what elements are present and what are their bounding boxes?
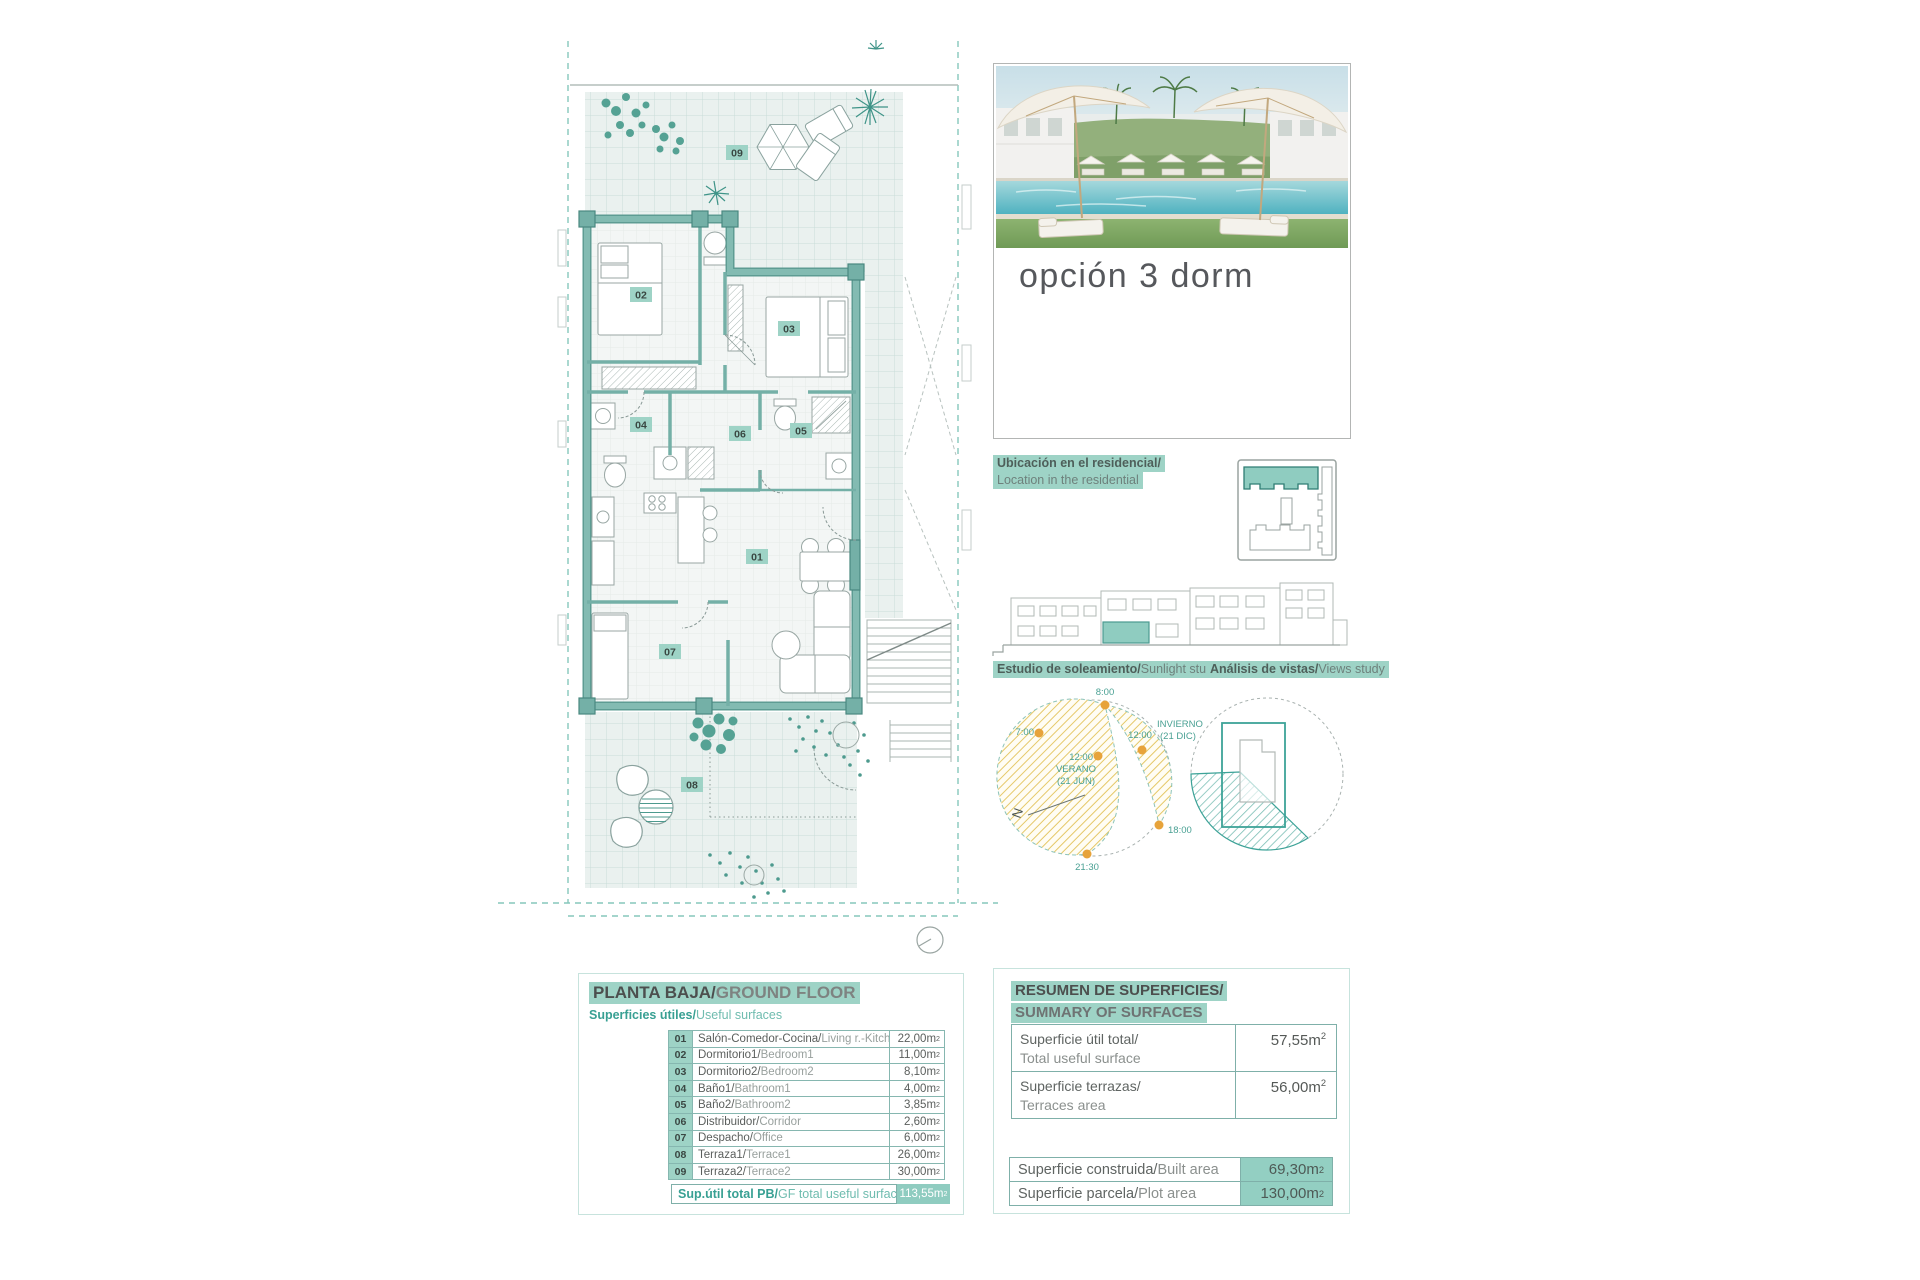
- table-row: 02Dormitorio1/Bedroom111,00m2: [669, 1047, 944, 1064]
- row-value: 11,00m2: [889, 1048, 944, 1064]
- room-label-06: 06: [734, 429, 746, 441]
- total-label: Sup.útil total PB/GF total useful surfac…: [671, 1184, 897, 1204]
- row-num: 09: [669, 1164, 693, 1180]
- row-value: 26,00m2: [889, 1147, 944, 1163]
- row-name: Terraza2/Terrace2: [693, 1164, 889, 1180]
- table-row: Superficie construida/Built area 69,30m2: [1010, 1158, 1332, 1181]
- row-name: Despacho/Office: [693, 1131, 889, 1147]
- table-row: Superficie útil total/Total useful surfa…: [1012, 1025, 1336, 1071]
- views-study-label: Análisis de vistas/Views study: [1206, 661, 1389, 678]
- diagonal-guides: [905, 277, 956, 610]
- row-name: Dormitorio1/Bedroom1: [693, 1048, 889, 1064]
- row-value: 69,30m2: [1240, 1158, 1332, 1181]
- row-name: Salón-Comedor-Cocina/Living r.-Kitchen: [693, 1031, 889, 1047]
- views-building-footprint: [1240, 740, 1275, 802]
- row-name: Baño2/Bathroom2: [693, 1097, 889, 1113]
- summary-of-surfaces-panel: RESUMEN DE SUPERFICIES/ SUMMARY OF SURFA…: [993, 968, 1350, 1214]
- room-label-01: 01: [751, 552, 763, 564]
- ground-floor-title-en: GROUND FLOOR: [716, 983, 856, 1002]
- useful-surfaces-subtitle-en: Useful surfaces: [696, 1008, 782, 1022]
- sun-time-1200-winter: 12:00: [1128, 730, 1152, 741]
- table-row: 01Salón-Comedor-Cocina/Living r.-Kitchen…: [669, 1031, 944, 1047]
- row-value: 22,00m2: [889, 1031, 944, 1047]
- row-label: Superficie parcela/Plot area: [1010, 1182, 1240, 1205]
- row-name: Distribuidor/Corridor: [693, 1114, 889, 1130]
- room-label-02: 02: [635, 290, 647, 302]
- sun-summer-date: (21 JUN): [1057, 776, 1095, 787]
- room-label-05: 05: [795, 426, 807, 438]
- room-surfaces-table: 01Salón-Comedor-Cocina/Living r.-Kitchen…: [668, 1030, 945, 1180]
- useful-surfaces-subtitle: Superficies útiles/Useful surfaces: [589, 1008, 782, 1022]
- row-name: Baño1/Bathroom1: [693, 1081, 889, 1097]
- ground-floor-title-es: PLANTA BAJA/: [593, 983, 716, 1002]
- row-value: 6,00m2: [889, 1131, 944, 1147]
- row-num: 01: [669, 1031, 693, 1047]
- row-label: Superficie construida/Built area: [1010, 1158, 1240, 1181]
- row-value: 57,55m2: [1235, 1025, 1336, 1071]
- sun-summer-label: VERANO: [1056, 764, 1096, 775]
- row-num: 08: [669, 1147, 693, 1163]
- ground-floor-title: PLANTA BAJA/GROUND FLOOR: [589, 983, 860, 1003]
- row-name: Terraza1/Terrace1: [693, 1147, 889, 1163]
- section-marker: [917, 927, 943, 953]
- table-row: 07Despacho/Office6,00m2: [669, 1130, 944, 1147]
- table-row: 08Terraza1/Terrace126,00m2: [669, 1146, 944, 1163]
- row-label: Superficie útil total/Total useful surfa…: [1012, 1025, 1235, 1071]
- table-row: 04Baño1/Bathroom14,00m2: [669, 1080, 944, 1097]
- table-row: 06Distribuidor/Corridor2,60m2: [669, 1113, 944, 1130]
- room-label-07: 07: [664, 647, 676, 659]
- stairs: [867, 620, 951, 762]
- room-label-03: 03: [783, 324, 795, 336]
- row-value: 2,60m2: [889, 1114, 944, 1130]
- row-num: 03: [669, 1064, 693, 1080]
- summary-table-main: Superficie útil total/Total useful surfa…: [1011, 1024, 1337, 1119]
- summary-title: RESUMEN DE SUPERFICIES/ SUMMARY OF SURFA…: [1011, 980, 1227, 1024]
- room-label-08: 08: [686, 780, 698, 792]
- highlighted-unit: [1103, 622, 1149, 643]
- row-num: 05: [669, 1097, 693, 1113]
- floor-plan-drawing: 01 02 03 04 05 06 07 08 09: [558, 35, 973, 960]
- sunlight-study-label: Estudio de soleamiento/Sunlight study: [993, 661, 1223, 678]
- row-num: 07: [669, 1131, 693, 1147]
- total-value: 113,55m2: [897, 1184, 950, 1204]
- row-value: 4,00m2: [889, 1081, 944, 1097]
- views-label-en: Views study: [1318, 662, 1384, 676]
- table-row: 09Terraza2/Terrace230,00m2: [669, 1163, 944, 1180]
- row-value: 8,10m2: [889, 1064, 944, 1080]
- summary-table-built-plot: Superficie construida/Built area 69,30m2…: [1009, 1157, 1333, 1206]
- sun-time-2130: 21:30: [1075, 862, 1099, 873]
- room-label-09: 09: [731, 148, 743, 160]
- room-label-04: 04: [635, 420, 647, 432]
- table-row: 05Baño2/Bathroom23,85m2: [669, 1096, 944, 1113]
- summary-title-en: SUMMARY OF SURFACES: [1011, 1003, 1207, 1023]
- option-panel: opción 3 dorm: [993, 63, 1351, 439]
- location-label-es: Ubicación en el residencial/: [993, 455, 1165, 472]
- row-value: 130,00m2: [1240, 1182, 1332, 1205]
- row-name: Dormitorio2/Bedroom2: [693, 1064, 889, 1080]
- views-diagram: [1180, 690, 1358, 862]
- summary-title-es: RESUMEN DE SUPERFICIES/: [1011, 981, 1227, 1001]
- row-num: 04: [669, 1081, 693, 1097]
- ground-floor-surfaces-panel: PLANTA BAJA/GROUND FLOOR Superficies úti…: [578, 973, 964, 1215]
- row-value: 56,00m2: [1235, 1072, 1336, 1118]
- sunlight-label-es: Estudio de soleamiento/: [997, 662, 1141, 676]
- useful-surfaces-subtitle-es: Superficies útiles/: [589, 1008, 696, 1022]
- table-row: 03Dormitorio2/Bedroom28,10m2: [669, 1063, 944, 1080]
- table-row: Superficie terrazas/Terraces area 56,00m…: [1012, 1071, 1336, 1118]
- site-plan-diagram: [1236, 458, 1340, 566]
- elevation-drawing: [988, 578, 1353, 670]
- row-value: 3,85m2: [889, 1097, 944, 1113]
- option-title: opción 3 dorm: [1019, 257, 1254, 296]
- row-value: 30,00m2: [889, 1164, 944, 1180]
- row-num: 06: [669, 1114, 693, 1130]
- location-label: Ubicación en el residencial/ Location in…: [993, 455, 1223, 489]
- total-row: Sup.útil total PB/GF total useful surfac…: [671, 1184, 950, 1204]
- table-row: Superficie parcela/Plot area 130,00m2: [1010, 1181, 1332, 1205]
- row-num: 02: [669, 1048, 693, 1064]
- sun-time-0800: 8:00: [1096, 687, 1115, 698]
- pool-render-photo: [996, 66, 1348, 248]
- row-label: Superficie terrazas/Terraces area: [1012, 1072, 1235, 1118]
- sun-time-0700: 7:00: [1016, 727, 1035, 738]
- sun-time-1200-summer: 12:00: [1069, 752, 1093, 763]
- views-label-es: Análisis de vistas/: [1210, 662, 1318, 676]
- location-label-en: Location in the residential: [993, 472, 1143, 489]
- brochure-page: 01 02 03 04 05 06 07 08 09: [0, 0, 1920, 1280]
